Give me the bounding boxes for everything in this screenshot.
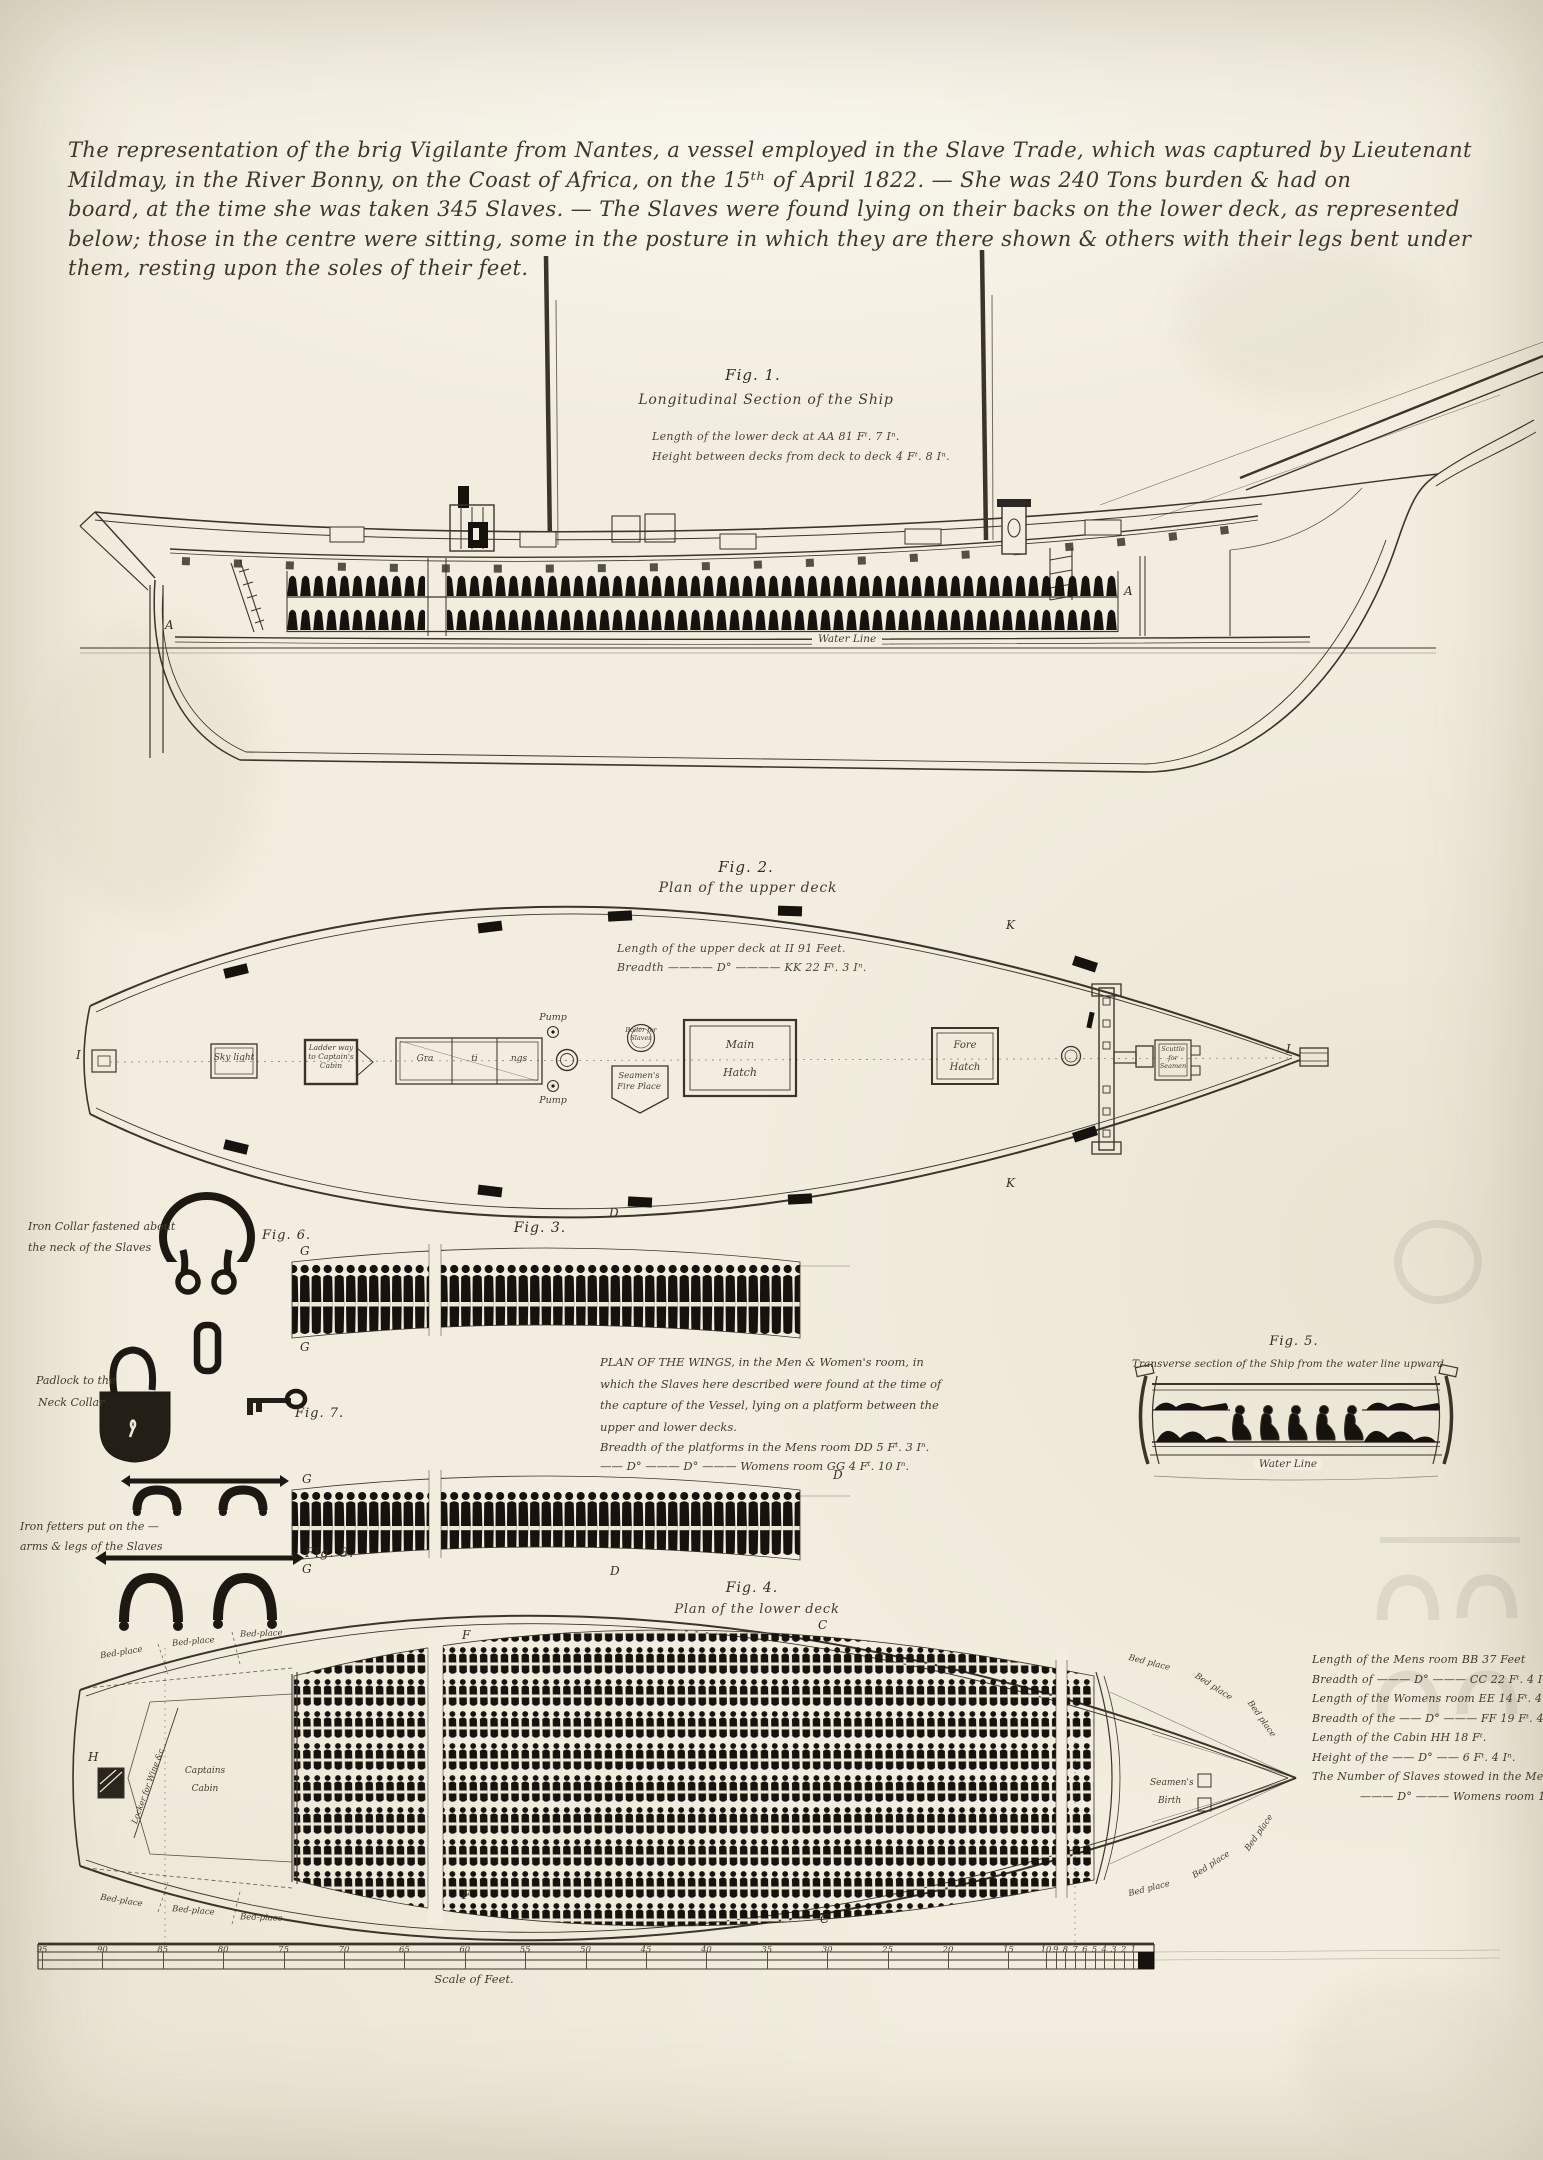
fig2-main-hatch-label: Hatch: [723, 1066, 757, 1079]
fig2-fore-hatch-label: Hatch: [950, 1062, 981, 1073]
fig3-text-line: the capture of the Vessel, lying on a pl…: [600, 1395, 920, 1417]
fig2-mark-k: K: [1006, 918, 1015, 932]
fig4-label: Fig. 4.: [726, 1580, 778, 1596]
fig6-caption-line: Iron Collar fastened about: [28, 1220, 175, 1233]
measurement-line: Breadth of ——— D° ——— CC 22 Fᵗ. 4 Iⁿ.: [1312, 1670, 1543, 1690]
fig4-title: Plan of the lower deck: [674, 1602, 839, 1617]
fig4-measurements: Length of the Mens room BB 37 Feet Bread…: [1312, 1650, 1543, 1806]
fig2-title: Plan of the upper deck: [659, 880, 838, 896]
scale-ruler: [38, 1944, 1500, 1969]
fig2-gratings-label: ngs: [497, 1054, 541, 1064]
verso-bleed-ghosts: [1380, 1224, 1520, 1716]
measurement-line: Length of the Womens room EE 14 Fᵗ. 4 Iⁿ…: [1312, 1689, 1543, 1709]
fig3-mark-g: G: [300, 1340, 310, 1354]
measurement-line: The Number of Slaves stowed in the Mens …: [1312, 1767, 1543, 1787]
fig3-mark-d: D: [609, 1206, 619, 1220]
fig5-water-line-label: Water Line: [1254, 1458, 1322, 1470]
fig2-boiler-label: Boiler for Slaves: [622, 1026, 660, 1042]
fig3-mark-g: G: [300, 1244, 310, 1258]
fig1-water-line-label: Water Line: [812, 633, 882, 645]
header-line: below; those in the centre were sitting,…: [68, 225, 1100, 255]
header-line: them, resting upon the soles of their fe…: [68, 254, 1100, 284]
fig2-note-breadth: Breadth ———— D° ———— KK 22 Fᵗ. 3 Iⁿ.: [617, 961, 867, 974]
fig3-text-line: —— D° ——— D° ——— Womens room GG 4 Fᵗ. 10…: [600, 1457, 920, 1476]
fig3-mark-g: G: [302, 1562, 312, 1576]
fig2-gratings-label: ti: [452, 1054, 497, 1064]
fig3-label: Fig. 3.: [514, 1220, 566, 1236]
fig4-mark-f: F: [462, 1888, 470, 1902]
fig4-lower-deck-plan: [73, 1616, 1296, 1944]
fig3-mark-g: G: [302, 1472, 312, 1486]
fig4-mark-f: F: [462, 1628, 470, 1642]
fig7-caption-line: Padlock to the: [36, 1374, 116, 1387]
fig2-label: Fig. 2.: [718, 858, 774, 876]
fig2-gratings-label: Gra: [398, 1054, 452, 1064]
fig1-mark-a: A: [1124, 584, 1133, 598]
fig8-caption-line: arms & legs of the Slaves: [20, 1540, 163, 1553]
fig3-text-line: PLAN OF THE WINGS, in the Men & Women's …: [600, 1352, 920, 1374]
fig2-scuttle-label: Scuttle for Seamen: [1157, 1045, 1189, 1071]
fig7-caption-line: Neck Collar: [38, 1396, 104, 1409]
fig3-description: PLAN OF THE WINGS, in the Men & Women's …: [600, 1352, 920, 1476]
fig2-mark-i: I: [1286, 1042, 1291, 1056]
fig1-title: Longitudinal Section of the Ship: [638, 392, 893, 408]
header-line: board, at the time she was taken 345 Sla…: [68, 195, 1100, 225]
fig8-label: Fig. 8.: [305, 1546, 354, 1561]
fig4-mark-c: C: [818, 1618, 827, 1632]
fig5-label: Fig. 5.: [1269, 1334, 1318, 1349]
fig1-mark-a: A: [165, 618, 174, 632]
fig3-text-line: which the Slaves here described were fou…: [600, 1374, 920, 1396]
fig7-label: Fig. 7.: [295, 1406, 344, 1421]
fig4-mark-c: C: [820, 1912, 829, 1926]
scale-caption: Scale of Feet.: [434, 1972, 513, 1986]
fig4-bed-place-label: Bed-place: [240, 1912, 283, 1923]
fig2-note-length: Length of the upper deck at II 91 Feet.: [617, 942, 846, 955]
fig4-captains-cabin-label: Cabin: [192, 1784, 219, 1794]
fig2-sky-light-label: Sky light: [212, 1053, 256, 1063]
header-line: Mildmay, in the River Bonny, on the Coas…: [68, 166, 1100, 196]
fig2-main-hatch-label: Main: [726, 1038, 754, 1051]
measurement-line: Breadth of the —— D° ——— FF 19 Fᵗ. 4 Iⁿ.: [1312, 1709, 1543, 1729]
fig4-mark-h: H: [88, 1750, 98, 1764]
fig6-label: Fig. 6.: [262, 1228, 311, 1243]
fig8-iron-fetters: [95, 1475, 304, 1631]
fig1-note-height: Height between decks from deck to deck 4…: [652, 450, 950, 463]
measurement-line: Length of the Cabin HH 18 Fᵗ.: [1312, 1728, 1543, 1748]
fig5-title: Transverse section of the Ship from the …: [1132, 1358, 1444, 1370]
fig3-mark-d: D: [610, 1564, 620, 1578]
fig2-pump-label: Pump: [539, 1012, 567, 1023]
fig1-longitudinal-section: [80, 250, 1543, 772]
fig2-ladder-way-label: Ladder way to Captain's Cabin: [306, 1043, 356, 1070]
fig1-label: Fig. 1.: [725, 366, 781, 384]
fig2-fore-hatch-label: Fore: [953, 1040, 976, 1051]
fig3-text-line: Breadth of the platforms in the Mens roo…: [600, 1438, 920, 1457]
fig2-mark-k: K: [1006, 1176, 1015, 1190]
fig2-mark-i: I: [76, 1048, 81, 1062]
fig6-caption-line: the neck of the Slaves: [28, 1241, 151, 1254]
fig3-text-line: upper and lower decks.: [600, 1417, 920, 1439]
measurement-line: Height of the —— D° —— 6 Fᵗ. 4 Iⁿ.: [1312, 1748, 1543, 1768]
header-inscription: The representation of the brig Vigilante…: [68, 136, 1100, 284]
fig2-pump-label: Pump: [539, 1095, 567, 1106]
fig2-fire-place-label: Seamen's Fire Place: [610, 1071, 668, 1093]
fig4-seamens-birth-label: Birth: [1158, 1796, 1181, 1806]
fig4-captains-cabin-label: Captains: [185, 1766, 225, 1776]
engraving-art: [0, 0, 1543, 2160]
fig4-bed-place-label: Bed-place: [240, 1628, 283, 1639]
measurement-line: Length of the Mens room BB 37 Feet: [1312, 1650, 1543, 1670]
engraving-plate: The representation of the brig Vigilante…: [0, 0, 1543, 2160]
measurement-line: ——— D° ——— Womens room 118: [1312, 1787, 1543, 1807]
header-line: The representation of the brig Vigilante…: [68, 136, 1100, 166]
fig1-note-length: Length of the lower deck at AA 81 Fᵗ. 7 …: [652, 430, 900, 443]
fig8-caption-line: Iron fetters put on the —: [20, 1520, 159, 1533]
fig4-seamens-birth-label: Seamen's: [1150, 1778, 1194, 1788]
